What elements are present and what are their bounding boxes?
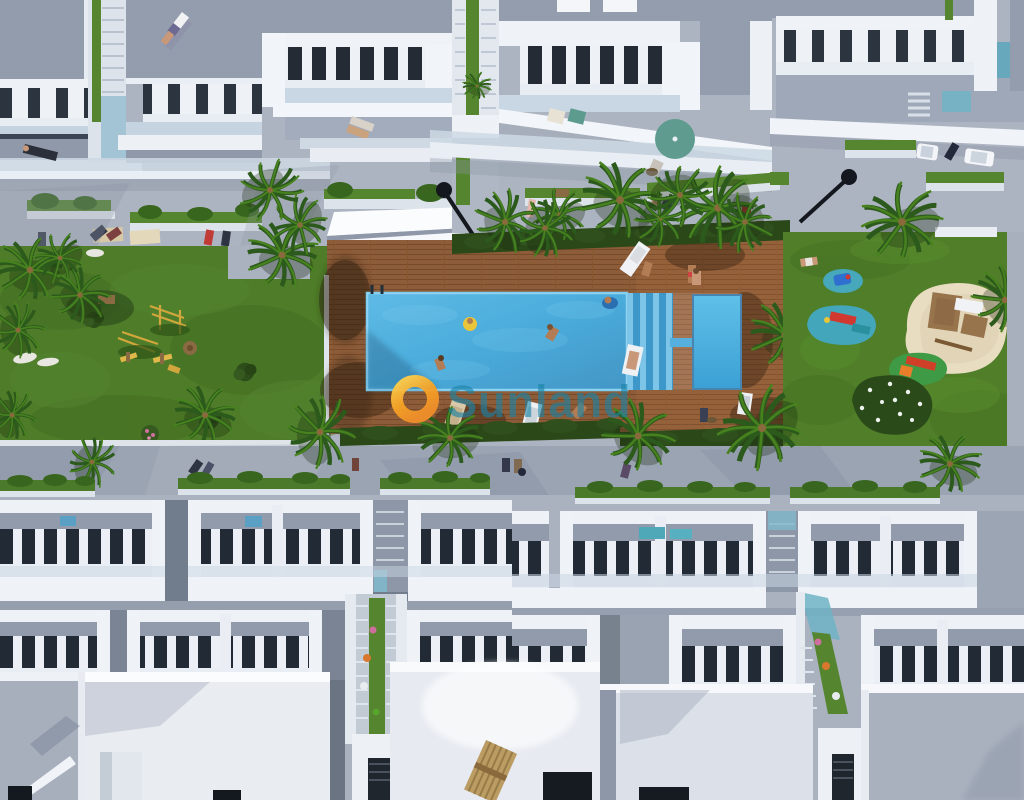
svg-text:Sunland: Sunland [447,376,632,427]
